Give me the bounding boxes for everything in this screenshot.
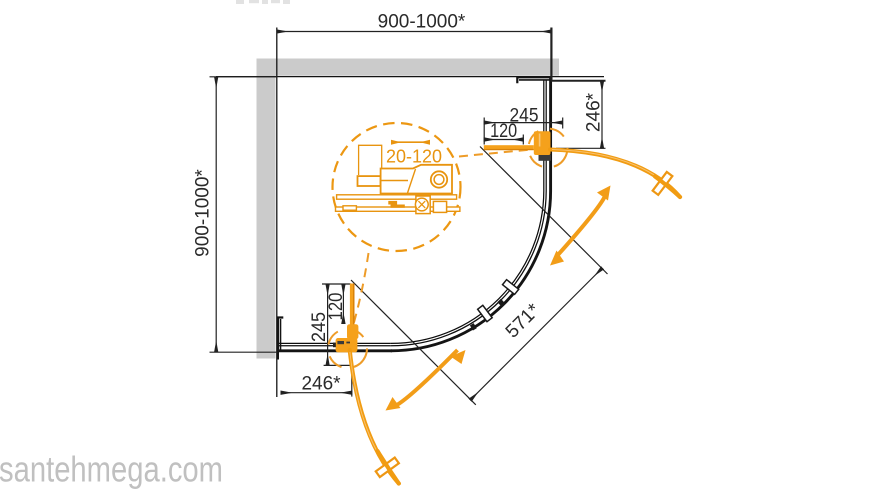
svg-text:246*: 246*	[584, 92, 605, 132]
svg-text:900-1000*: 900-1000*	[193, 169, 214, 257]
svg-text:santehmega.com: santehmega.com	[0, 449, 223, 490]
svg-text:120: 120	[326, 293, 347, 321]
svg-text:120: 120	[490, 121, 517, 142]
svg-text:571*: 571*	[502, 299, 545, 342]
svg-text:900-1000*: 900-1000*	[378, 12, 466, 33]
svg-text:20-120: 20-120	[386, 146, 442, 167]
svg-text:246*: 246*	[301, 374, 341, 395]
